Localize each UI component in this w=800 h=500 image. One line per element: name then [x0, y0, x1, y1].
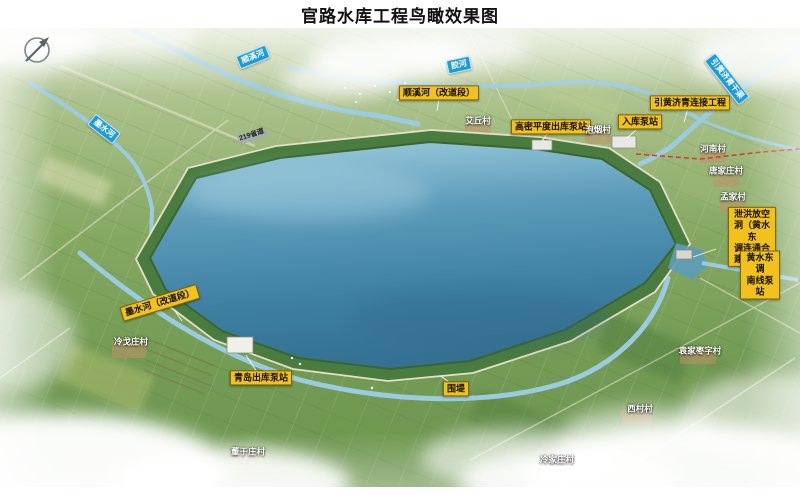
- facility-label-qingdao-outlet-pump: 青岛出库泵站: [230, 370, 292, 385]
- village-label-yuanjia: 袁家枣字村: [679, 346, 722, 357]
- village-label-lenggezhuang: 冷戈庄村: [114, 337, 148, 348]
- village-label-paoyan: 泡烟村: [585, 125, 611, 136]
- village-label-dongyuzhuang: 董于庄村: [231, 447, 265, 458]
- facility-label-shunxi-rerouted: 顺溪河（改道段）: [399, 85, 479, 100]
- aerial-rendering: 顺溪河（改道段） 高密平度出库泵站 引黄济青连接工程 入库泵站 泄洪放空洞（黄水…: [0, 28, 800, 487]
- village-label-aiqiu: 艾丘村: [465, 116, 491, 127]
- title-bar: 官路水库工程鸟瞰效果图: [0, 0, 800, 28]
- compass-icon: [18, 30, 56, 68]
- facility-label-inlet-pump: 入库泵站: [618, 114, 662, 129]
- village-label-xicun: 西村村: [627, 404, 653, 415]
- page-title: 官路水库工程鸟瞰效果图: [301, 2, 499, 27]
- village-label-mengjia: 孟家村: [720, 192, 746, 203]
- facility-label-huangshui-south-pump: 黄水东调 南线泵站: [740, 251, 780, 300]
- village-label-henan: 河南村: [700, 144, 726, 155]
- screenshot-root: 官路水库工程鸟瞰效果图: [0, 0, 800, 500]
- orchard-rows: [144, 340, 215, 394]
- village-label-tangjiazhuang: 唐家庄村: [709, 166, 743, 177]
- facility-label-ring-dike: 围堤: [443, 381, 469, 396]
- facility-label-yinhuangjiqing-connection: 引黄济青连接工程: [650, 95, 730, 110]
- facility-label-gaomi-pingdu-pump: 高密平度出库泵站: [511, 119, 591, 134]
- village-label-lengjiazhuang: 冷家庄村: [540, 455, 574, 466]
- bottom-margin: [0, 487, 800, 500]
